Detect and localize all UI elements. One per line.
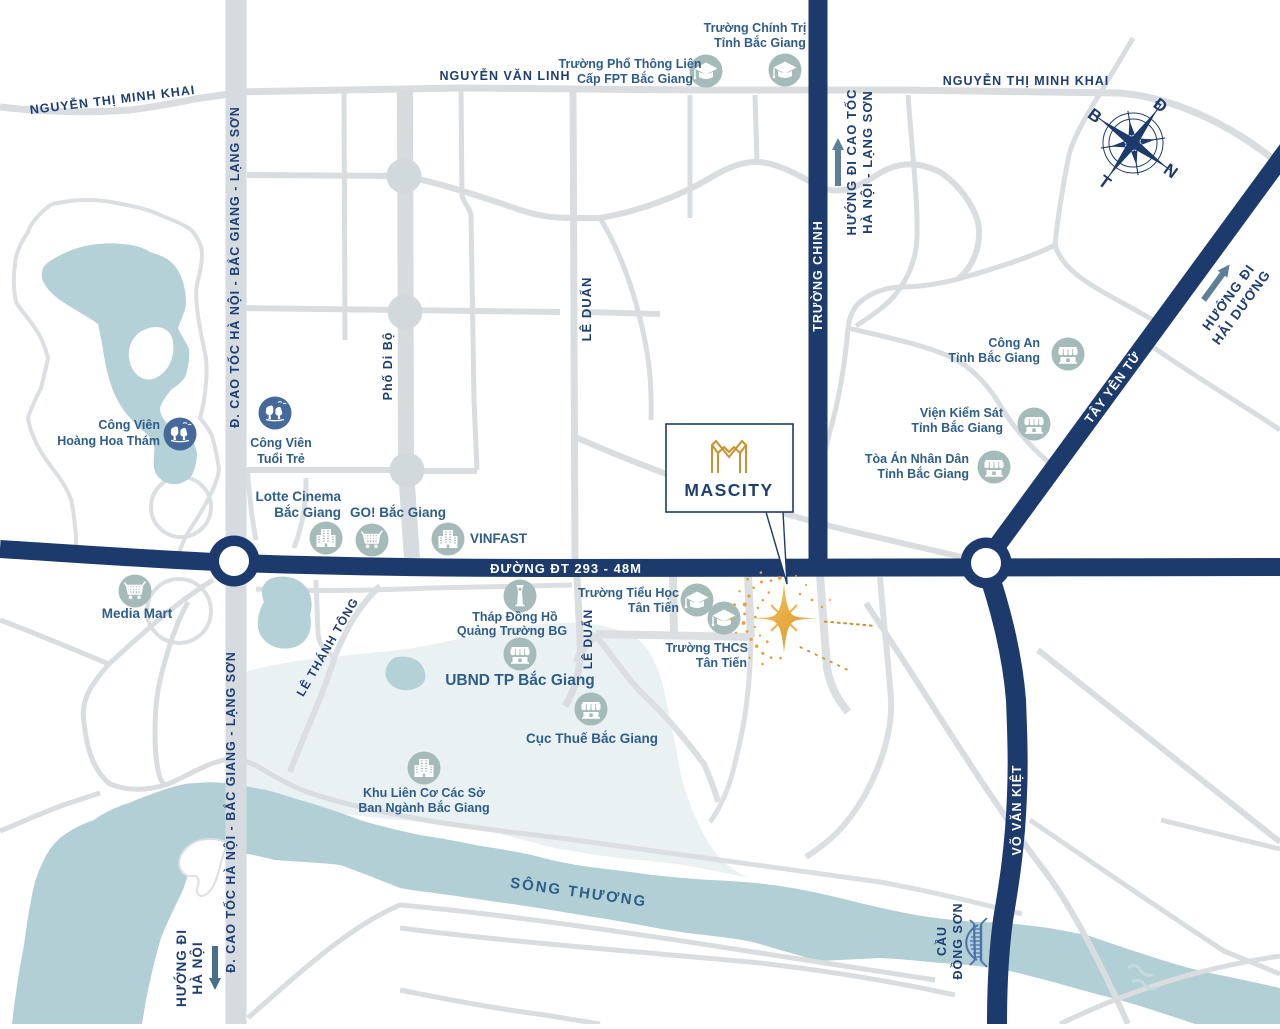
svg-text:VÕ VĂN KIỆT: VÕ VĂN KIỆT	[1009, 765, 1024, 856]
svg-text:Tỉnh Bắc Giang: Tỉnh Bắc Giang	[948, 350, 1040, 365]
svg-text:LÊ DUẨN: LÊ DUẨN	[580, 609, 595, 669]
svg-text:Tòa Án Nhân Dân: Tòa Án Nhân Dân	[865, 451, 969, 466]
svg-text:HÀ NỘI - LẠNG SƠN: HÀ NỘI - LẠNG SƠN	[860, 90, 875, 234]
svg-text:Tỉnh Bắc Giang: Tỉnh Bắc Giang	[714, 35, 806, 50]
svg-text:ĐỒNG SƠN: ĐỒNG SƠN	[950, 902, 965, 979]
svg-text:Trường THCS: Trường THCS	[665, 641, 748, 655]
svg-text:NGUYỄN THỊ MINH KHAI: NGUYỄN THỊ MINH KHAI	[943, 73, 1110, 88]
svg-text:GO! Bắc Giang: GO! Bắc Giang	[350, 505, 446, 520]
svg-text:Trường Phổ Thông Liên: Trường Phổ Thông Liên	[559, 57, 702, 71]
svg-text:Ban Ngành Bắc Giang: Ban Ngành Bắc Giang	[358, 800, 489, 815]
svg-text:Lotte Cinema: Lotte Cinema	[255, 489, 341, 504]
svg-text:Trường Tiểu Học: Trường Tiểu Học	[578, 586, 679, 600]
svg-text:Phố Di Bộ: Phố Di Bộ	[381, 332, 395, 401]
svg-text:Đ. CAO TỐC HÀ NỘI - BẮC GIANG: Đ. CAO TỐC HÀ NỘI - BẮC GIANG - LẠNG SƠN	[223, 651, 238, 973]
svg-text:Khu Liên Cơ Các Sở: Khu Liên Cơ Các Sở	[363, 786, 485, 800]
svg-text:LÊ DUẨN: LÊ DUẨN	[579, 277, 594, 342]
svg-text:Đ. CAO TỐC HÀ NỘI - BẮC GIANG: Đ. CAO TỐC HÀ NỘI - BẮC GIANG - LẠNG SƠN	[227, 106, 242, 428]
svg-text:MASCITY: MASCITY	[684, 480, 773, 500]
svg-text:HƯỚNG ĐI: HƯỚNG ĐI	[174, 929, 189, 1007]
svg-text:Viện Kiểm Sát: Viện Kiểm Sát	[920, 406, 1004, 420]
svg-text:Tháp Đồng Hồ: Tháp Đồng Hồ	[472, 610, 558, 624]
svg-text:CẦU: CẦU	[934, 926, 949, 956]
svg-text:Công Viên: Công Viên	[250, 436, 312, 450]
svg-text:Tỉnh Bắc Giang: Tỉnh Bắc Giang	[911, 420, 1003, 435]
svg-text:VINFAST: VINFAST	[470, 531, 528, 546]
svg-text:NGUYỄN VĂN LINH: NGUYỄN VĂN LINH	[440, 68, 571, 83]
svg-text:Media Mart: Media Mart	[102, 606, 173, 621]
svg-text:Tân Tiến: Tân Tiến	[628, 601, 679, 615]
svg-text:HÀ NỘI: HÀ NỘI	[190, 941, 205, 994]
svg-text:ĐƯỜNG ĐT 293 - 48M: ĐƯỜNG ĐT 293 - 48M	[490, 561, 642, 576]
svg-text:Công Viên: Công Viên	[98, 418, 160, 432]
svg-text:Công An: Công An	[988, 336, 1040, 350]
svg-text:UBND TP Bắc Giang: UBND TP Bắc Giang	[445, 671, 595, 689]
svg-text:Trường Chính Trị: Trường Chính Trị	[704, 21, 807, 35]
svg-text:HƯỚNG ĐI CAO TỐC: HƯỚNG ĐI CAO TỐC	[844, 89, 859, 236]
svg-text:Hoàng Hoa Thám: Hoàng Hoa Thám	[57, 434, 160, 448]
svg-text:Tân Tiến: Tân Tiến	[696, 656, 747, 670]
svg-text:Cục Thuế Bắc Giang: Cục Thuế Bắc Giang	[526, 731, 658, 746]
svg-text:Bắc Giang: Bắc Giang	[274, 505, 341, 520]
svg-text:Tuổi Trẻ: Tuổi Trẻ	[257, 452, 305, 466]
svg-text:TRƯỜNG CHINH: TRƯỜNG CHINH	[810, 220, 825, 332]
svg-text:Quảng Trường BG: Quảng Trường BG	[457, 624, 567, 638]
svg-text:Cấp FPT Bắc Giang: Cấp FPT Bắc Giang	[577, 71, 693, 86]
svg-text:Tỉnh Bắc Giang: Tỉnh Bắc Giang	[877, 466, 969, 481]
